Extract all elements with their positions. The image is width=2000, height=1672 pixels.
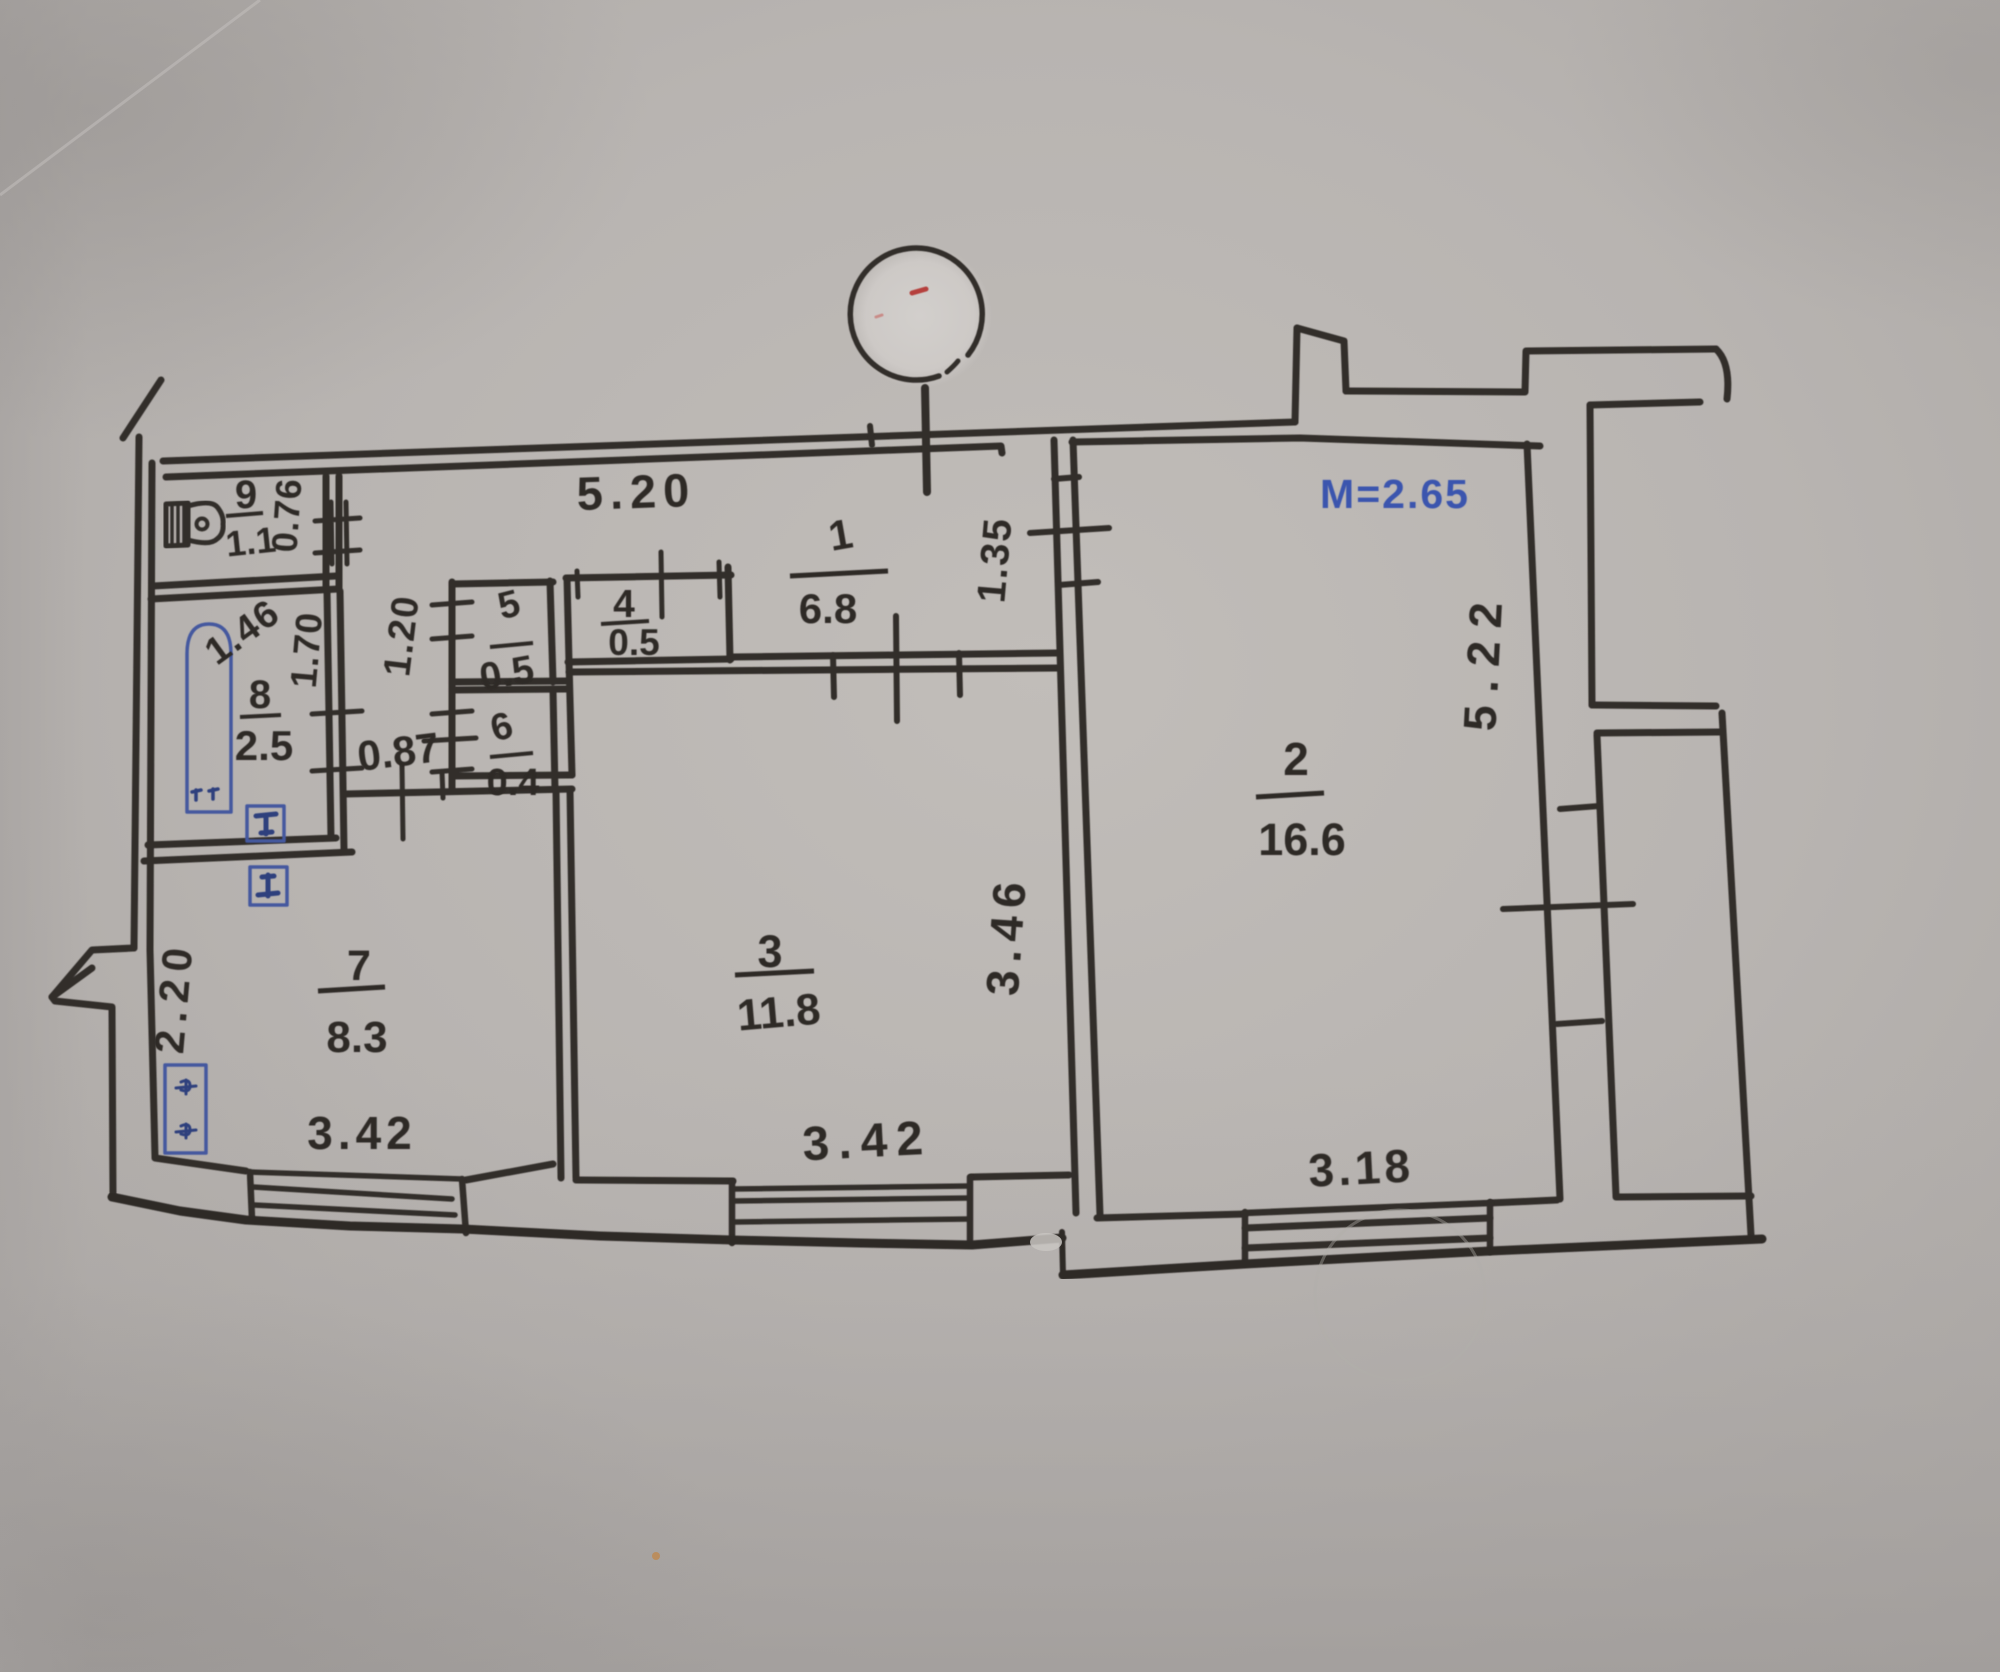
svg-text:1.35: 1.35 bbox=[969, 515, 1020, 604]
svg-text:8: 8 bbox=[249, 673, 271, 717]
svg-text:9: 9 bbox=[235, 473, 257, 517]
svg-text:3.42: 3.42 bbox=[307, 1107, 417, 1159]
svg-text:2.5: 2.5 bbox=[235, 722, 293, 769]
svg-text:5.22: 5.22 bbox=[1453, 588, 1512, 732]
svg-text:2: 2 bbox=[1283, 733, 1309, 785]
svg-text:0.5: 0.5 bbox=[608, 622, 659, 663]
svg-text:3.18: 3.18 bbox=[1307, 1139, 1415, 1196]
svg-text:6.8: 6.8 bbox=[799, 585, 857, 632]
svg-text:3: 3 bbox=[757, 926, 782, 977]
svg-text:0.4: 0.4 bbox=[487, 762, 540, 804]
svg-text:0.87: 0.87 bbox=[355, 723, 442, 780]
svg-text:1.70: 1.70 bbox=[283, 610, 330, 689]
svg-text:2.20: 2.20 bbox=[145, 938, 202, 1055]
svg-text:7: 7 bbox=[347, 942, 371, 990]
svg-text:5.20: 5.20 bbox=[576, 463, 697, 520]
svg-text:4: 4 bbox=[613, 583, 635, 626]
svg-text:16.6: 16.6 bbox=[1258, 814, 1346, 865]
svg-text:8.3: 8.3 bbox=[326, 1013, 387, 1062]
svg-text:11.8: 11.8 bbox=[735, 985, 822, 1041]
svg-text:3.42: 3.42 bbox=[801, 1112, 933, 1172]
svg-text:0.76: 0.76 bbox=[263, 477, 309, 554]
svg-text:М=2.65: М=2.65 bbox=[1320, 471, 1470, 517]
svg-text:3.46: 3.46 bbox=[976, 872, 1036, 997]
